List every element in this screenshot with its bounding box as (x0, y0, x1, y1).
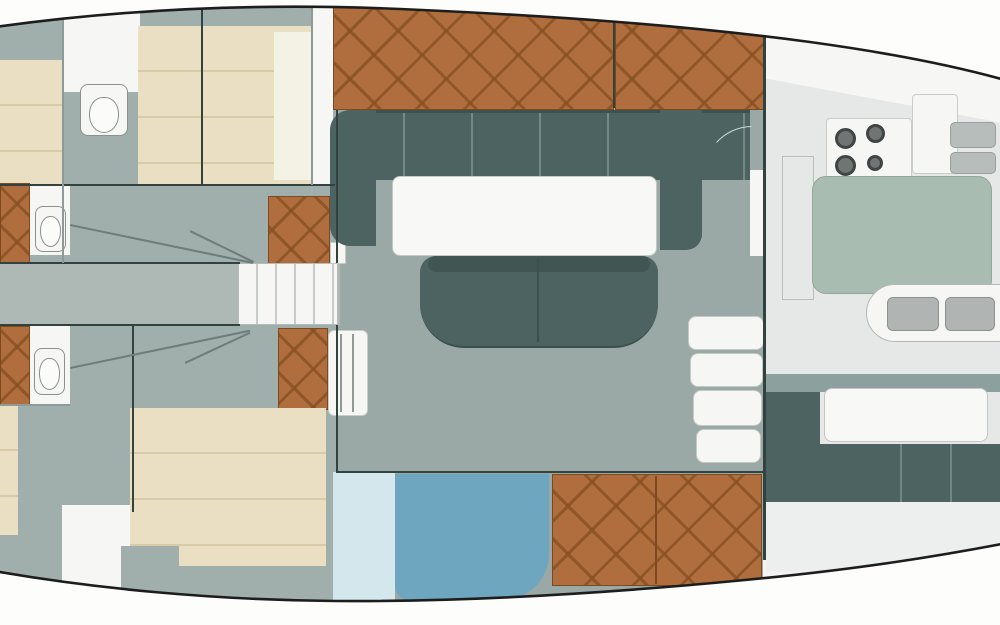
wall-corridor-bottom (0, 324, 240, 326)
cabin-top-hatch-left (333, 0, 614, 110)
toilet-forward (80, 84, 128, 136)
dinette-seat-band (766, 444, 1000, 502)
double-sink (866, 284, 1000, 342)
stove (826, 118, 912, 180)
salon-table (392, 176, 657, 256)
sink-basin-right (945, 297, 995, 331)
head-sole-hatch-upper (0, 183, 30, 263)
sink-basin-left (887, 297, 939, 331)
bulkhead-forward (201, 8, 203, 185)
door-opening-galley (750, 170, 764, 256)
hull-interior (0, 0, 1000, 625)
dinette-seam-1 (900, 444, 902, 502)
floor-notch (121, 546, 179, 596)
aft-pale-panel (333, 472, 395, 600)
counter-pad-upper (950, 122, 996, 148)
mast-step-box (330, 242, 346, 264)
aft-sole-hatch (552, 474, 762, 586)
locker-divider-1 (340, 334, 342, 412)
berth-port-forward (0, 60, 62, 185)
center-bench (420, 256, 658, 348)
stove-burner (835, 128, 856, 149)
locker-divider-2 (352, 334, 354, 412)
dinette-floor (766, 502, 1000, 572)
dinette-table (824, 388, 988, 442)
berth-lower-double (130, 408, 326, 566)
berth-port-aft-sliver (0, 405, 18, 535)
dinette-seat-left (766, 392, 820, 444)
deck-plan (0, 0, 1000, 625)
line-shelf (311, 8, 313, 185)
stove-burner (867, 155, 883, 171)
wardrobe-locker (328, 330, 368, 416)
toilet-bowl-icon (40, 216, 61, 247)
sole-hatch-below-steps (278, 328, 328, 410)
line-berth-left (62, 10, 64, 263)
step-4 (696, 429, 761, 463)
aft-berth-blue (395, 474, 549, 600)
bulkhead-salon-left-upper (336, 110, 338, 263)
toilet-bowl-icon (39, 358, 60, 390)
stove-burner (835, 155, 856, 176)
corridor-steps (238, 263, 338, 325)
wall-aft-compartment (336, 471, 764, 473)
bulkhead-salon-left-lower (336, 325, 338, 472)
step-3 (693, 390, 762, 426)
step-1 (688, 316, 764, 350)
step-2 (690, 353, 763, 387)
hatch-divider-top (613, 4, 615, 108)
toilet-mid-lower (34, 348, 65, 395)
settee-right-arm (660, 110, 702, 250)
galley-counter-island (812, 176, 992, 294)
aft-sole-divider (655, 476, 657, 584)
counter-pad-lower (950, 152, 996, 174)
toilet-bowl-icon (89, 97, 119, 133)
stove-burner (866, 124, 885, 143)
bench-divider (537, 258, 539, 342)
companionway-steps (688, 316, 766, 466)
head-forward-floor (62, 10, 140, 92)
bench-backrest (428, 256, 650, 272)
bulkhead-galley (763, 30, 766, 560)
cabin-top-hatch-right (615, 0, 766, 110)
dinette-seam-2 (950, 444, 952, 502)
berth-pillow (274, 32, 312, 180)
wall-forward-cabin-aft (0, 184, 335, 186)
wall-corridor-top (0, 262, 240, 264)
counter-edge-outline (782, 156, 814, 300)
sole-hatch-above-steps (268, 196, 330, 264)
head-sole-hatch-lower (0, 326, 30, 406)
line-head-lower (0, 404, 70, 406)
